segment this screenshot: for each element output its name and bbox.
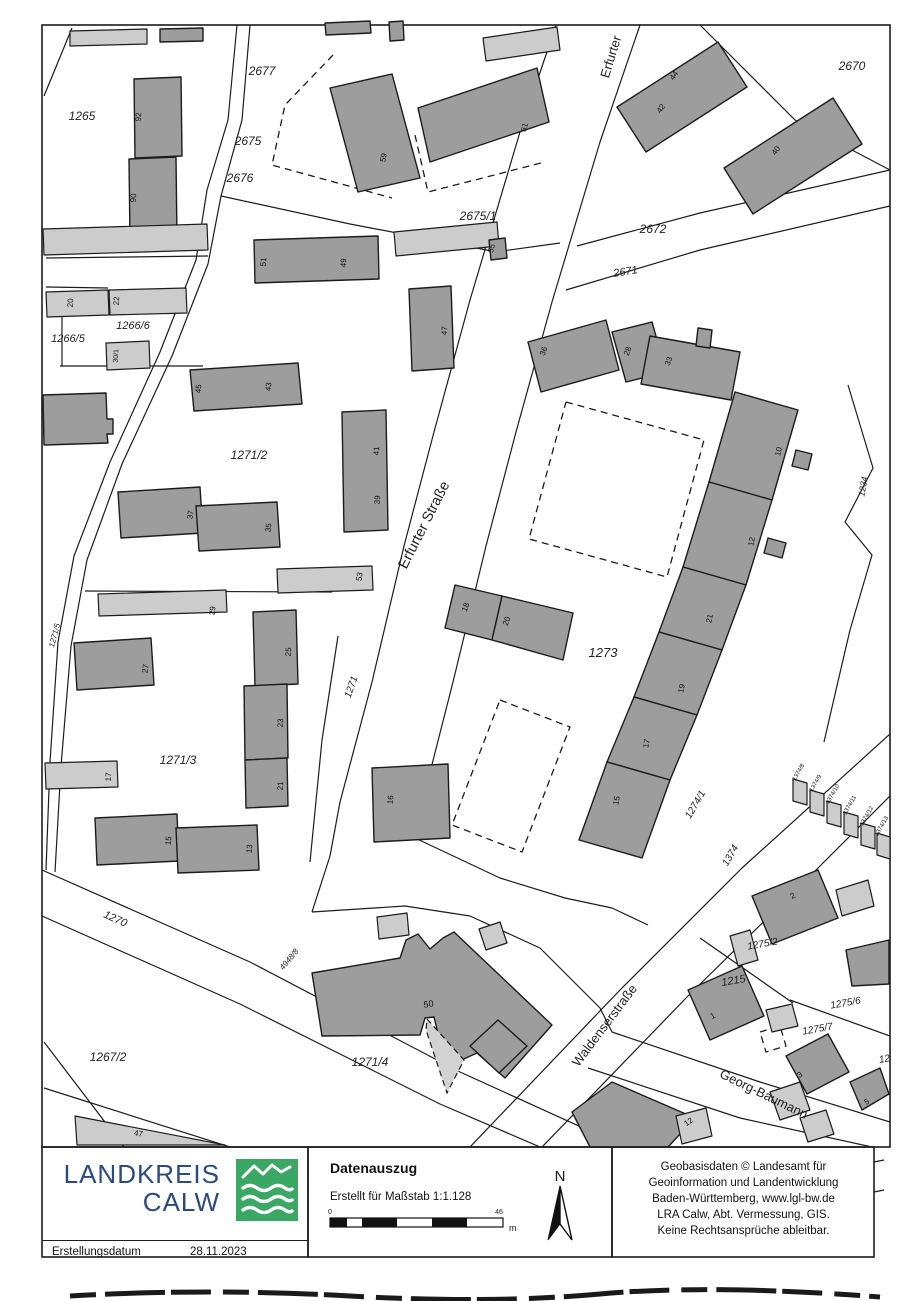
house-number-label: 27 xyxy=(140,663,150,674)
building-footprint xyxy=(724,98,862,214)
attribution-line: Baden-Württemberg, www.lgl-bw.de xyxy=(613,1191,874,1207)
parcel-number-label: 2675/1 xyxy=(459,209,497,223)
building-footprint xyxy=(810,790,824,816)
building-footprint xyxy=(160,28,203,42)
house-number-label: 1374/9 xyxy=(809,773,824,792)
brand-line1: LANDKREIS xyxy=(64,1160,220,1188)
parcel-boundary xyxy=(46,287,108,288)
building-footprint xyxy=(254,236,379,283)
building-footprint xyxy=(330,74,420,192)
parcel-number-label: 1271/5 xyxy=(47,622,62,648)
fold-mark xyxy=(874,1160,884,1162)
building-footprint xyxy=(46,290,109,317)
parcel-number-label: 1271/4 xyxy=(352,1055,389,1069)
building-footprint xyxy=(709,392,798,500)
house-number-label: 1374/8 xyxy=(792,762,807,781)
attribution-line: Geobasisdaten © Landesamt für xyxy=(613,1159,874,1175)
parcel-number-label: 1267/2 xyxy=(90,1050,127,1064)
parcel-boundary xyxy=(310,636,338,862)
parcel-number-label: 1271/3 xyxy=(160,753,197,767)
scan-artifact xyxy=(70,1290,880,1300)
north-label: N xyxy=(555,1168,566,1185)
house-number-label: 1374/10 xyxy=(825,783,841,805)
building-footprint xyxy=(75,1116,225,1145)
house-number-label: 21 xyxy=(276,781,285,791)
building-footprint xyxy=(764,538,786,558)
scale-bar: 0 46 m xyxy=(328,1209,516,1233)
parcel-boundary xyxy=(415,838,648,925)
building-footprint xyxy=(43,224,208,255)
creation-date-row: Erstellungsdatum 28.11.2023 xyxy=(42,1240,308,1258)
building-footprint xyxy=(377,913,409,939)
house-number-label: 17 xyxy=(104,772,113,782)
attribution-block: Geobasisdaten © Landesamt für Geoinforma… xyxy=(613,1159,874,1239)
building-footprint xyxy=(641,336,740,400)
building-footprint xyxy=(766,1004,798,1032)
attribution-line: Keine Rechtsansprüche ableitbar. xyxy=(613,1223,874,1239)
parcel-boundary xyxy=(824,385,873,742)
building-footprint xyxy=(70,29,147,46)
building-footprint xyxy=(572,1082,695,1147)
building-footprint xyxy=(483,27,560,61)
house-number-label: 35 xyxy=(264,522,274,532)
house-number-label: 49 xyxy=(339,258,349,268)
building-footprint xyxy=(342,410,388,532)
parcel-number-label: 1271/2 xyxy=(231,448,268,462)
scale-note: Erstellt für Maßstab 1:1.128 xyxy=(330,1191,471,1203)
house-number-label: 53 xyxy=(354,571,364,582)
parcel-number-label: 1234 xyxy=(856,476,869,497)
creation-date-value: 28.11.2023 xyxy=(190,1246,247,1258)
house-number-label: 1374/12 xyxy=(859,805,875,827)
creation-date-label: Erstellungsdatum xyxy=(42,1246,141,1258)
building-footprint xyxy=(190,363,302,411)
attribution-line: Geoinformation und Landentwicklung xyxy=(613,1175,874,1191)
parcel-number-label: 1271 xyxy=(343,675,361,700)
house-number-label: 39 xyxy=(373,495,382,505)
house-number-label: 16 xyxy=(386,794,396,804)
parcel-number-label: 2675 xyxy=(234,134,262,148)
building-footprint xyxy=(394,222,499,256)
building-footprint xyxy=(479,922,507,950)
map-canvas: 12652677267526762675/12670267226711266/6… xyxy=(0,0,920,1301)
scale-bar-unit: m xyxy=(509,1223,517,1233)
scale-bar-zero: 0 xyxy=(328,1209,332,1216)
building-footprint xyxy=(683,482,772,585)
building-footprint xyxy=(389,21,404,41)
parcel-number-label: 1275/6 xyxy=(830,995,862,1011)
house-number-label: 92 xyxy=(134,112,143,122)
house-number-label: 25 xyxy=(284,647,293,657)
building-footprint xyxy=(792,450,812,470)
scale-bar-max: 46 xyxy=(495,1209,503,1216)
building-footprint xyxy=(696,328,712,348)
parcel-boundary xyxy=(542,796,890,1147)
street-name-label: Erfurter Straße xyxy=(396,479,454,572)
building-footprint xyxy=(325,21,371,35)
building-footprint xyxy=(836,880,874,916)
house-number-label: 23 xyxy=(276,718,285,728)
parcel-number-label: 1265 xyxy=(69,109,96,123)
building-footprints xyxy=(43,21,890,1147)
building-footprint xyxy=(372,764,450,842)
dashed-boundary xyxy=(529,402,704,577)
parcel-number-label: 2672 xyxy=(639,222,667,236)
building-footprint xyxy=(492,596,573,660)
attribution-line: LRA Calw, Abt. Vermessung, GIS. xyxy=(613,1207,874,1223)
house-number-label: 1374/11 xyxy=(842,794,858,816)
dashed-boundary xyxy=(452,700,570,852)
building-footprint xyxy=(846,940,889,986)
house-number-label: 50 xyxy=(423,998,434,1009)
parcel-boundary xyxy=(470,734,890,1147)
house-number-label: 90 xyxy=(129,193,138,203)
building-footprint xyxy=(793,779,807,805)
building-footprint xyxy=(43,393,113,445)
house-number-label: 22 xyxy=(112,296,121,306)
parcel-number-label: 1273 xyxy=(589,645,619,660)
house-number-label: 47 xyxy=(440,325,450,335)
building-footprint xyxy=(752,870,838,944)
building-footprint xyxy=(579,762,670,858)
parcel-number-label: 1266/5 xyxy=(51,333,86,345)
parcel-number-label: 2671 xyxy=(612,264,639,280)
house-number-label: 15 xyxy=(164,835,174,845)
parcel-number-label: 1274/1 xyxy=(683,789,708,821)
brand-line2: CALW xyxy=(64,1188,220,1216)
house-number-label: 20 xyxy=(66,298,75,308)
house-number-label: 13 xyxy=(245,843,255,853)
scanned-map-page: 12652677267526762675/12670267226711266/6… xyxy=(0,0,920,1301)
document-title: Datenauszug xyxy=(330,1160,417,1176)
house-number-label: 37 xyxy=(186,509,196,519)
house-number-label: 41 xyxy=(372,446,381,456)
parcel-number-label: 2676 xyxy=(226,171,254,185)
parcel-boundary xyxy=(46,256,208,258)
parcel-number-label: 2677 xyxy=(248,64,277,78)
parcel-boundary xyxy=(44,28,72,96)
parcel-number-label: 1270 xyxy=(102,909,130,930)
parcel-number-label: 1374 xyxy=(721,843,742,868)
street-name-label: Erfurter xyxy=(597,33,624,79)
parcel-number-label: 4948/8 xyxy=(278,947,301,972)
building-footprint xyxy=(617,42,747,152)
fold-mark xyxy=(874,1190,884,1192)
parcel-number-label: 2670 xyxy=(838,59,866,73)
house-number-label: 45 xyxy=(194,383,204,393)
parcel-number-label: 1266/6 xyxy=(116,320,151,332)
building-footprint xyxy=(418,68,549,162)
house-number-label: 51 xyxy=(259,257,269,267)
house-number-label: 43 xyxy=(264,381,274,391)
north-arrow: N xyxy=(548,1168,572,1240)
house-number-label: 29 xyxy=(208,605,218,615)
house-number-label: 30/1 xyxy=(113,349,121,363)
landkreis-calw-wordmark: LANDKREIS CALW xyxy=(50,1158,300,1228)
